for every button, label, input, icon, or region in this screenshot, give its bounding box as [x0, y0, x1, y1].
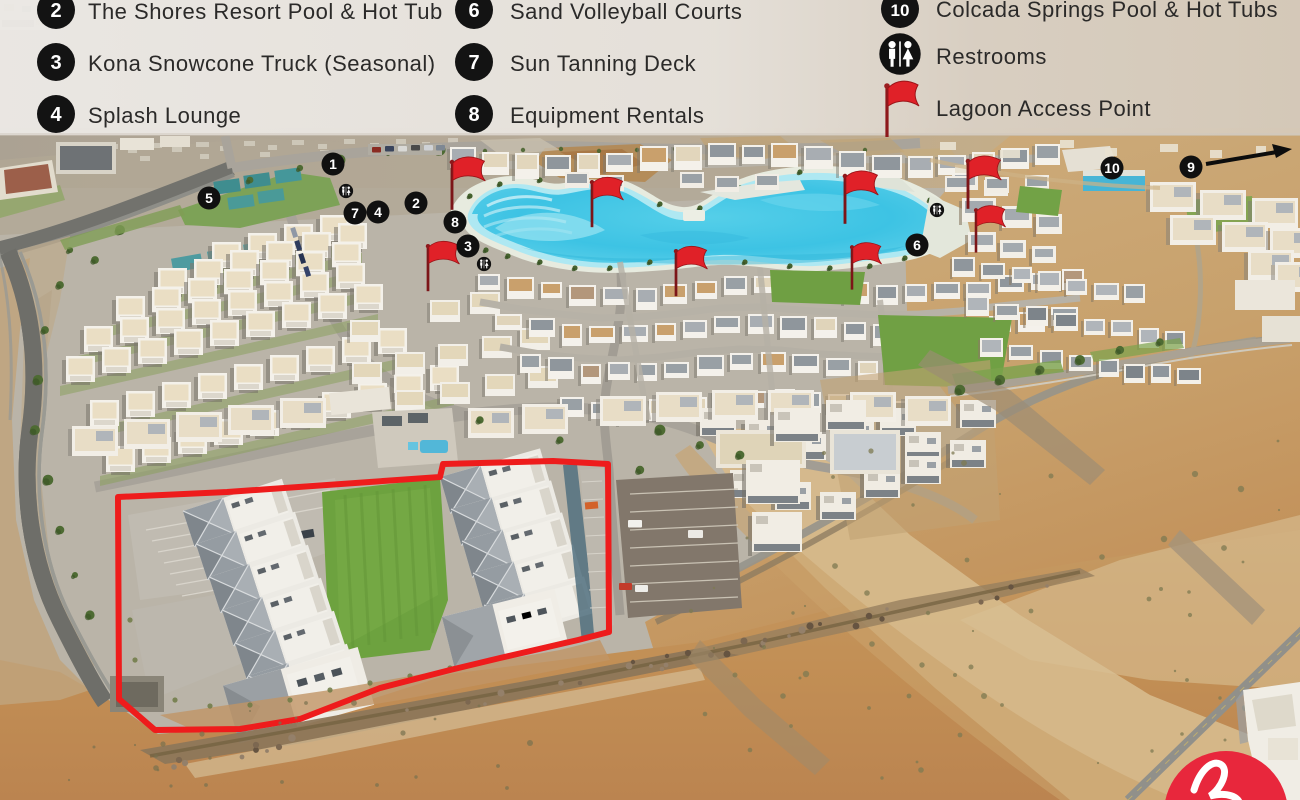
svg-text:5: 5: [205, 190, 213, 206]
svg-text:2: 2: [50, 0, 61, 22]
svg-text:8: 8: [451, 214, 459, 230]
svg-text:Equipment Rentals: Equipment Rentals: [510, 103, 704, 128]
svg-text:2: 2: [412, 195, 420, 211]
svg-text:9: 9: [1187, 159, 1195, 175]
svg-text:Sun Tanning Deck: Sun Tanning Deck: [510, 51, 697, 76]
svg-text:1: 1: [329, 156, 337, 172]
svg-text:8: 8: [468, 104, 479, 126]
svg-text:3: 3: [464, 238, 472, 254]
svg-text:7: 7: [468, 52, 479, 74]
svg-text:Lagoon Access Point: Lagoon Access Point: [936, 96, 1151, 121]
svg-text:The Shores Resort Pool & Hot T: The Shores Resort Pool & Hot Tub: [88, 0, 443, 24]
svg-text:4: 4: [374, 204, 382, 220]
svg-text:6: 6: [913, 237, 921, 253]
svg-text:Splash Lounge: Splash Lounge: [88, 103, 241, 128]
svg-text:Kona Snowcone Truck (Seasonal): Kona Snowcone Truck (Seasonal): [88, 51, 436, 76]
svg-text:6: 6: [468, 0, 479, 22]
svg-text:Colcada Springs Pool & Hot Tub: Colcada Springs Pool & Hot Tubs: [936, 0, 1278, 22]
svg-text:3: 3: [50, 52, 61, 74]
svg-text:Restrooms: Restrooms: [936, 44, 1047, 69]
svg-text:7: 7: [351, 205, 359, 221]
svg-text:4: 4: [50, 104, 62, 126]
svg-text:10: 10: [891, 1, 910, 20]
svg-text:10: 10: [1104, 160, 1120, 176]
svg-text:Sand Volleyball Courts: Sand Volleyball Courts: [510, 0, 742, 24]
